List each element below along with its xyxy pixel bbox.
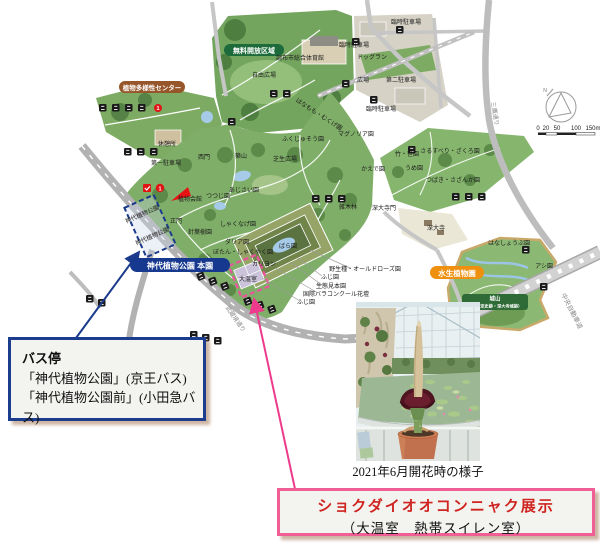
bus-stop-line2: 「神代植物公園前」(小田急バス) xyxy=(22,388,203,427)
tsubaki-label: つばき・さざんか園 xyxy=(426,176,480,184)
facility-icon xyxy=(150,148,158,156)
plant-hall-label: 植物会館 xyxy=(178,195,202,203)
shakunage-label: しゃくなげ園 xyxy=(220,220,256,228)
scale-tick: 50 xyxy=(554,126,561,132)
facility-icon xyxy=(86,295,94,303)
exhibit-callout: ショクダイオオコンニャク展示 （大温室 熱帯スイレン室） xyxy=(277,488,595,536)
facility-icon xyxy=(214,337,222,345)
facility-icon xyxy=(452,193,460,201)
facility-icon xyxy=(283,90,291,98)
compass-rose: N xyxy=(543,88,576,122)
fuji-label: ふじ園 xyxy=(321,274,339,281)
facility-icon xyxy=(338,195,346,203)
facility-icon xyxy=(112,104,120,112)
greenhouse-label: 大温室 xyxy=(239,275,257,283)
parking2-label: 第二駐車場 xyxy=(386,76,416,84)
facility-icon xyxy=(270,90,278,98)
scale-bar: 0 20 50 100 150m xyxy=(536,126,600,135)
ume-label: うめ園 xyxy=(405,165,423,172)
rose-concours-label: 国際バラコンクール花壇 xyxy=(303,290,369,298)
main-gate-label: 正門 xyxy=(170,218,182,225)
facility-icon xyxy=(540,283,548,291)
plaza-label: 広場 xyxy=(357,76,369,84)
page: 1 1 無料開放区域 植物多様性センター 神代植物公園 本園 水生植物園 城山 … xyxy=(0,0,600,543)
conifer-label: 針葉樹園 xyxy=(188,228,212,236)
facility-icon xyxy=(325,195,333,203)
free-zone-pill: 無料開放区域 xyxy=(233,46,275,55)
sarusuberi-label: さるすべり・ざくろ園 xyxy=(420,147,480,155)
ajisai-label: あじさい園 xyxy=(229,187,259,194)
temp-parking-label: 臨時駐車場 xyxy=(339,41,369,49)
parking-icon xyxy=(370,96,378,104)
facility-icon xyxy=(478,193,486,201)
parking1-label: 第一駐車場 xyxy=(151,159,181,167)
bus-stop-line1: 「神代植物公園」(京王バス) xyxy=(22,369,203,389)
kaede-label: かえで園 xyxy=(361,166,385,173)
chuo-expwy-label: 中央自動車道 xyxy=(559,291,585,330)
svg-text:1: 1 xyxy=(156,106,159,112)
check-marker xyxy=(143,184,151,192)
bus-stop-title: バス停 xyxy=(22,349,203,369)
botan-label: ぼたん・しゃくやく園 xyxy=(213,248,273,256)
take-sasa-label: 竹・笹園 xyxy=(395,150,419,158)
rest-house-label: 休憩所 xyxy=(158,140,176,148)
free-plaza-label: 自由広場 xyxy=(252,71,276,79)
hanashobu-label: はなしょうぶ園 xyxy=(488,240,530,247)
aquatic-garden-pill: 水生植物園 xyxy=(438,268,476,278)
facility-icon xyxy=(312,195,320,203)
facility-icon xyxy=(125,104,133,112)
fukujuso-label: ふくじゅそう園 xyxy=(282,136,324,143)
main-garden-pill: 神代植物公園 本園 xyxy=(147,261,213,271)
jindaiji-label: 深大寺 xyxy=(427,224,445,232)
facility-icon xyxy=(99,104,107,112)
exhibit-subtitle: （大温室 熱帯スイレン室） xyxy=(280,517,592,537)
bus-stop-callout: バス停 「神代植物公園」(京王バス) 「神代植物公園前」(小田急バス) xyxy=(8,337,206,421)
exhibit-title: ショクダイオオコンニャク展示 xyxy=(280,495,592,516)
dog-run-label: ドッグラン xyxy=(357,53,387,61)
facility-icon xyxy=(465,193,473,201)
photo-caption: 2021年6月開花時の様子 xyxy=(348,461,488,480)
diversity-center-pill: 植物多様性センター xyxy=(122,83,182,92)
lawn-plaza-label: 芝生広場 xyxy=(273,155,297,163)
dahlia-label: ダリア園 xyxy=(225,238,249,246)
svg-text:1: 1 xyxy=(158,186,161,192)
tsukiyama-label: 築山 xyxy=(235,152,247,160)
scale-tick: 150m xyxy=(585,126,600,132)
compass-n-label: N xyxy=(543,88,547,94)
shiroyama-pill: 城山 xyxy=(489,295,501,303)
temp-parking-label: 臨時駐車場 xyxy=(366,105,396,113)
carillon-label: カリヨン xyxy=(252,261,276,268)
west-gate-label: 西門 xyxy=(198,154,210,161)
jindaiji-gate-label: 深大寺門 xyxy=(372,204,396,212)
ashi-label: アシ園 xyxy=(535,263,553,270)
parking-icon xyxy=(396,26,404,34)
old-rose-label: 野生種・オールドローズ園 xyxy=(329,265,401,273)
facility-icon xyxy=(522,246,530,254)
tsutsuji-label: つつじ園 xyxy=(206,193,230,200)
facility-icon xyxy=(342,80,350,88)
flower-photo xyxy=(356,302,480,461)
facility-icon xyxy=(228,118,236,126)
park-map: 1 1 無料開放区域 植物多様性センター 神代植物公園 本園 水生植物園 城山 … xyxy=(0,0,600,543)
temp-parking-label: 臨時駐車場 xyxy=(391,18,421,26)
facility-icon xyxy=(124,148,132,156)
scale-tick: 100 xyxy=(571,126,582,132)
scale-tick: 0 xyxy=(536,126,540,132)
facility-icon xyxy=(137,148,145,156)
flower-photo-illustration xyxy=(356,302,480,461)
rose-garden-label: ばら園 xyxy=(279,242,297,250)
zokibayashi-label: 雑木林 xyxy=(339,203,357,211)
gym-label: 調布市総合体育館 xyxy=(276,54,324,62)
eco-garden-label: 生態見本園 xyxy=(316,282,346,290)
facility-icon xyxy=(138,104,146,112)
scale-tick: 20 xyxy=(543,126,550,132)
fuji-label: ふじ園 xyxy=(297,299,315,306)
magnolia-label: マグノリア園 xyxy=(338,130,374,138)
